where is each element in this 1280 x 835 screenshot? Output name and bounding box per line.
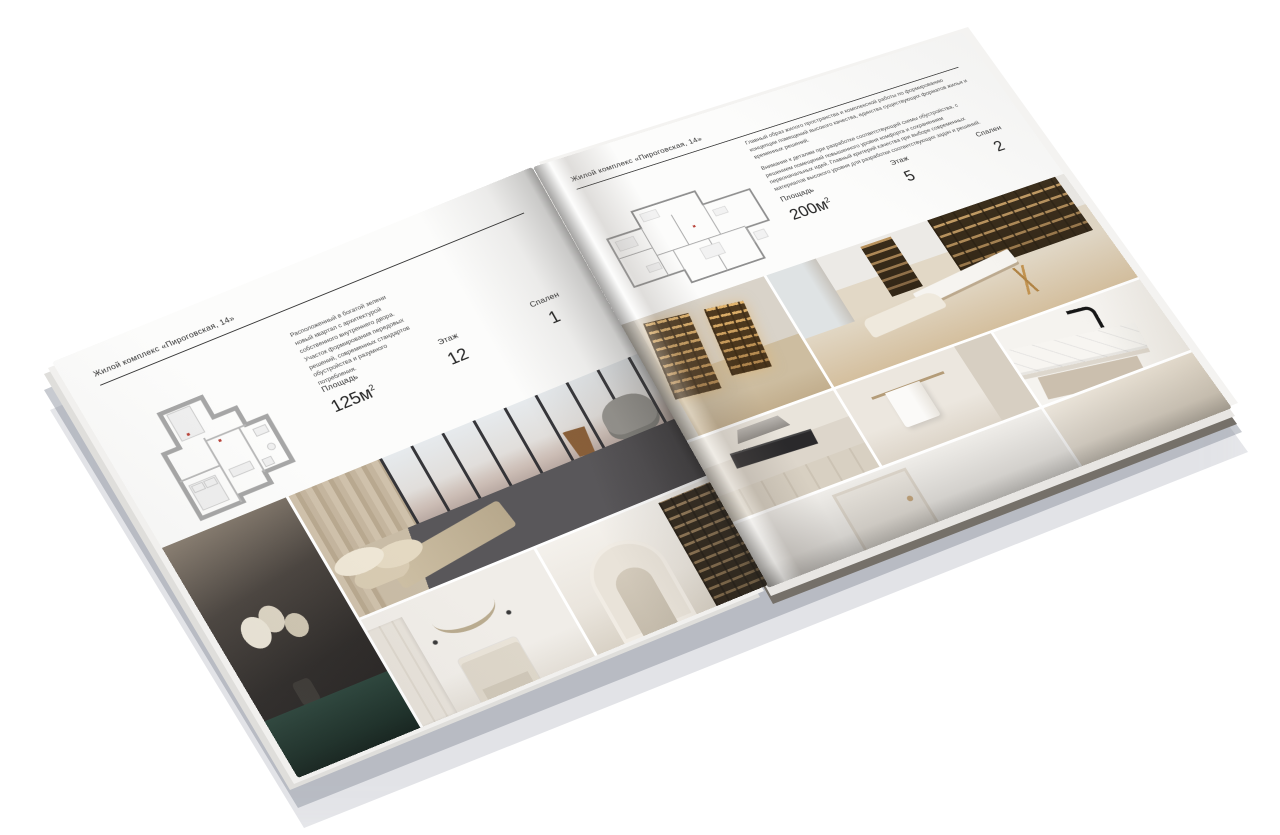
stat-bedrooms: Спален 2 — [974, 123, 1017, 158]
brochure-mockup-scene: Жилой комплекс «Пироговская, 14» Главный… — [0, 0, 1280, 835]
stat-value: 5 — [896, 166, 923, 187]
towel — [885, 381, 941, 428]
lit-cabinet — [704, 301, 771, 375]
stat-floor: Этаж 5 — [888, 154, 923, 187]
stat-value: 2 — [982, 135, 1017, 158]
stat-value: 12 — [444, 344, 473, 369]
page-header: Жилой комплекс «Пироговская, 14» — [569, 135, 704, 184]
flower-bouquet — [215, 581, 327, 672]
bookshelf — [860, 237, 922, 297]
stat-floor: Этаж 12 — [436, 331, 473, 370]
page-header: Жилой комплекс «Пироговская, 14» — [91, 313, 236, 378]
chaise-lounge — [862, 289, 948, 338]
stat-label: Этаж — [436, 331, 460, 347]
stat-value: 1 — [536, 303, 574, 332]
stat-bedrooms: Спален 1 — [528, 290, 574, 332]
